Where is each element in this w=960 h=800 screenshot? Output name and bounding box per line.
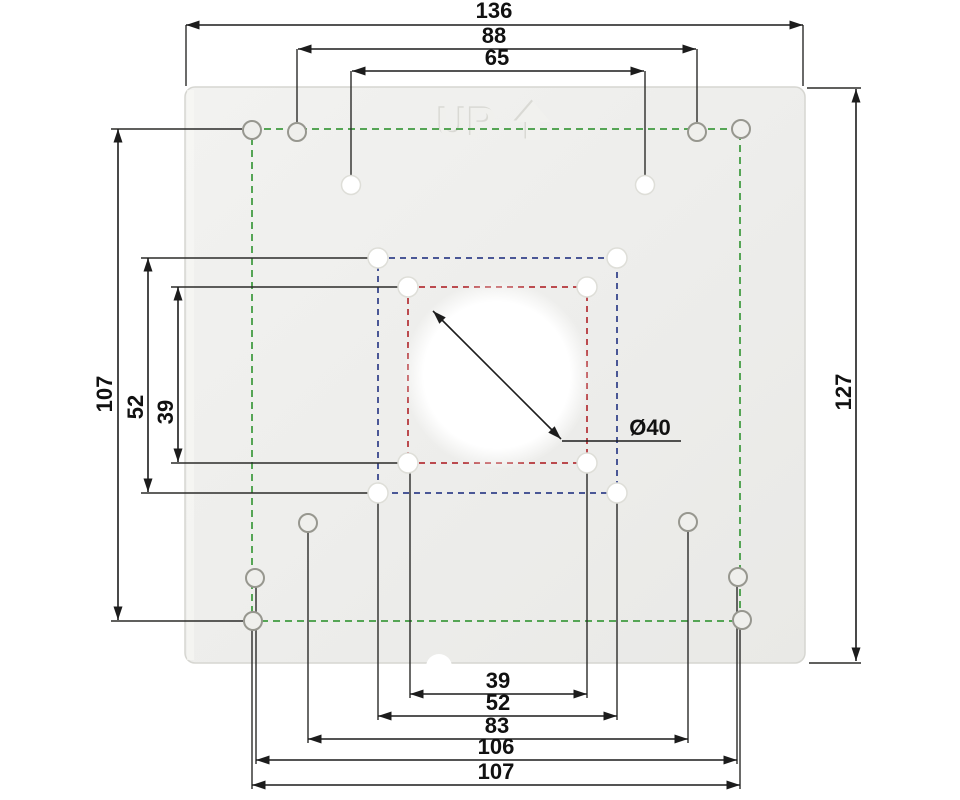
hole-88-left	[288, 123, 306, 141]
hole-106-right	[729, 568, 747, 586]
hole-83-left	[299, 514, 317, 532]
hole-65-right	[636, 176, 655, 195]
dimension-drawing: UP UP	[0, 0, 960, 800]
dim-label-top-65: 65	[485, 45, 509, 70]
hole-blue-bottom-left	[368, 483, 388, 503]
hole-red-top-left	[398, 277, 418, 297]
dim-label-bottom-106: 106	[478, 734, 515, 759]
dim-label-right-127: 127	[831, 374, 856, 411]
technical-drawing-canvas: UP UP	[0, 0, 960, 800]
hole-green-top-right	[732, 120, 750, 138]
dim-label-bottom-107: 107	[478, 759, 515, 784]
hole-blue-top-left	[368, 248, 388, 268]
hole-blue-top-right	[607, 248, 627, 268]
dim-label-left-52: 52	[123, 395, 148, 419]
hole-83-right	[679, 513, 697, 531]
dim-label-left-39: 39	[153, 400, 178, 424]
dim-label-top-136: 136	[476, 0, 513, 23]
dim-label-diameter-40: Ø40	[629, 415, 671, 440]
hole-blue-bottom-right	[607, 483, 627, 503]
hole-65-left	[342, 176, 361, 195]
dim-label-left-107: 107	[92, 376, 117, 413]
dim-label-bottom-52: 52	[486, 690, 510, 715]
hole-red-bottom-right	[577, 453, 597, 473]
hole-green-bottom-right	[733, 611, 751, 629]
hole-red-top-right	[577, 277, 597, 297]
hole-green-bottom-left	[244, 612, 262, 630]
hole-green-top-left	[243, 121, 261, 139]
hole-red-bottom-left	[398, 453, 418, 473]
bottom-edge-notch	[426, 654, 452, 680]
hole-88-right	[688, 123, 706, 141]
hole-106-left	[246, 569, 264, 587]
embossed-up-text: UP	[437, 99, 495, 146]
embossed-up-mark: UP UP	[436, 97, 551, 146]
